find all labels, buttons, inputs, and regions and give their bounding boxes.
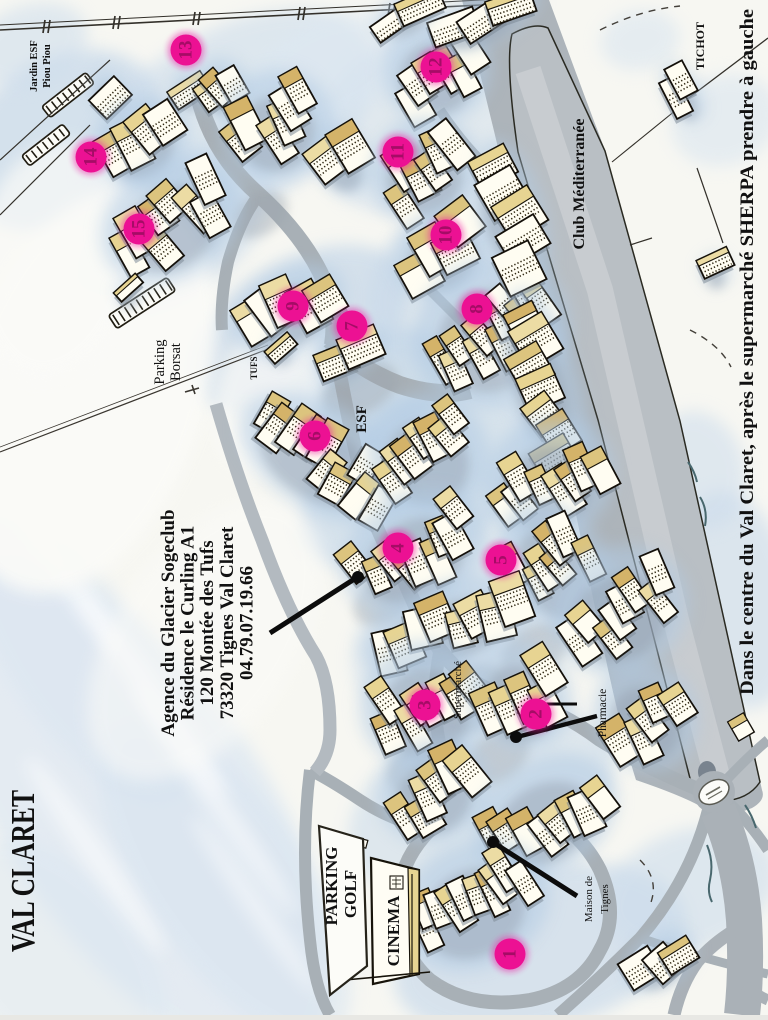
svg-text:15: 15 [129, 220, 150, 239]
svg-text:Agence du Glacier Sogeclub: Agence du Glacier Sogeclub [158, 509, 179, 736]
svg-text:TICHOT: TICHOT [693, 22, 707, 70]
svg-text:GOLF: GOLF [341, 870, 360, 918]
svg-text:ESF: ESF [354, 405, 370, 433]
svg-text:2: 2 [526, 709, 547, 719]
svg-text:Supermarché: Supermarché [452, 661, 464, 719]
svg-text:10: 10 [436, 226, 457, 245]
svg-text:12: 12 [426, 58, 447, 77]
svg-text:120 Montée des Tufs: 120 Montée des Tufs [197, 540, 218, 705]
svg-text:13: 13 [176, 41, 197, 60]
svg-text:Club Méditerranée: Club Méditerranée [571, 118, 588, 249]
svg-text:VAL CLARET: VAL CLARET [5, 790, 42, 952]
svg-text:Dans le centre du Val Claret,: Dans le centre du Val Claret, après le s… [737, 9, 758, 695]
svg-text:73320 Tignes Val Claret: 73320 Tignes Val Claret [217, 526, 238, 719]
svg-text:4: 4 [388, 543, 409, 553]
svg-text:Parking: Parking [152, 339, 168, 384]
svg-text:8: 8 [467, 304, 488, 314]
svg-text:11: 11 [388, 143, 409, 161]
svg-text:Piou Piou: Piou Piou [42, 44, 53, 88]
svg-text:Jardin ESF: Jardin ESF [29, 40, 40, 92]
svg-text:14: 14 [81, 147, 102, 167]
svg-text:Borsat: Borsat [168, 343, 184, 381]
svg-text:PARKING: PARKING [322, 846, 341, 925]
svg-text:9: 9 [283, 301, 304, 311]
svg-text:1: 1 [500, 949, 521, 959]
svg-text:Résidence le Curling A1: Résidence le Curling A1 [178, 526, 199, 721]
svg-text:CINEMA: CINEMA [384, 895, 403, 967]
svg-text:04.79.07.19.66: 04.79.07.19.66 [236, 566, 257, 680]
svg-text:3: 3 [415, 700, 436, 710]
svg-text:7: 7 [342, 321, 363, 331]
svg-text:6: 6 [305, 431, 326, 441]
svg-text:Pharmacie: Pharmacie [597, 689, 609, 738]
svg-text:5: 5 [491, 555, 512, 565]
svg-text:Tignes: Tignes [599, 884, 611, 914]
svg-text:Maison de: Maison de [583, 876, 595, 922]
svg-text:TUFS: TUFS [249, 356, 259, 379]
